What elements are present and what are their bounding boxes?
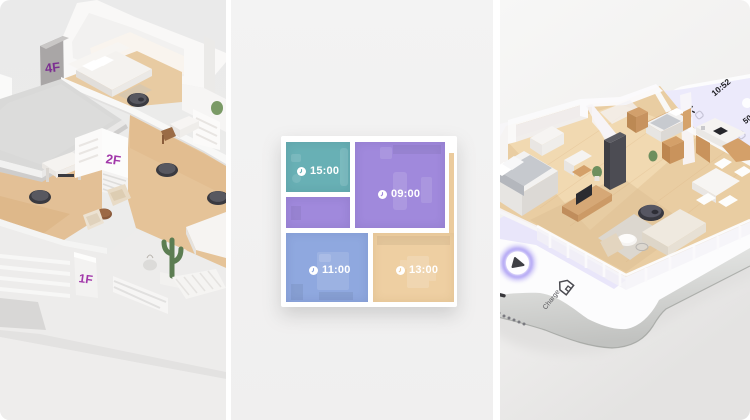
svg-text:4F: 4F	[44, 59, 61, 76]
svg-text:2F: 2F	[105, 151, 122, 168]
svg-text:1F: 1F	[78, 271, 94, 287]
